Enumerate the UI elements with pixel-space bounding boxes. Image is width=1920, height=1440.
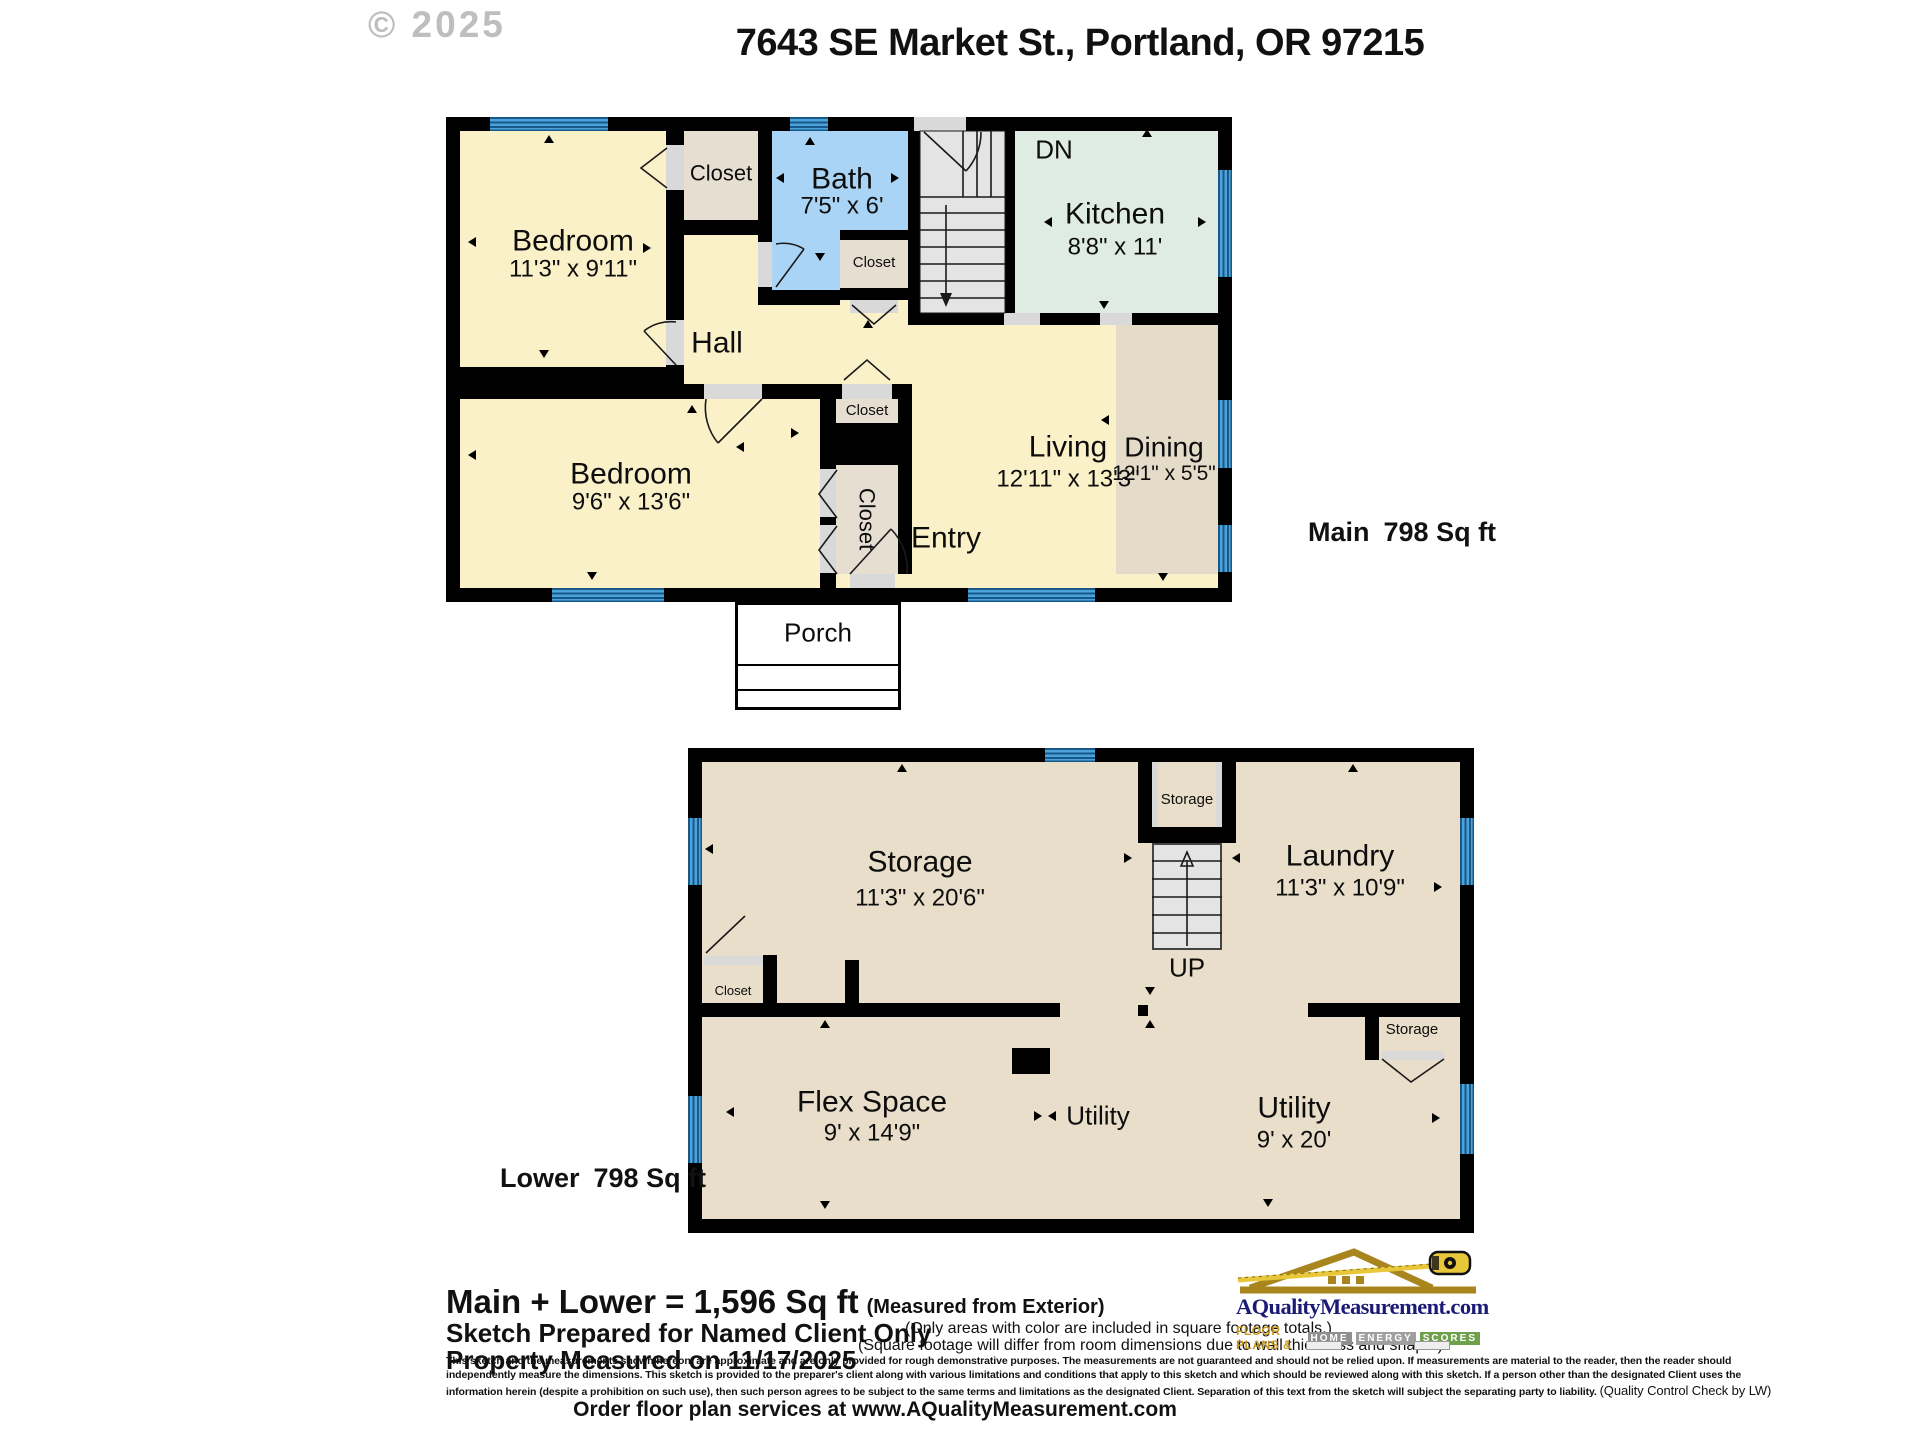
door-opening [666,320,684,365]
direction-arrow [544,135,554,143]
direction-arrow [1263,1199,1273,1207]
window [688,1096,702,1163]
direction-arrow [791,428,799,438]
direction-arrow [705,844,713,854]
label-living: Living [1029,431,1107,463]
direction-arrow [1232,853,1240,863]
label-storage-dims: 11'3" x 20'6" [855,885,985,910]
label-entry: Entry [911,522,981,554]
total-area-line: Main + Lower = 1,596 Sq ft(Measured from… [446,1283,1104,1321]
door-opening [1382,1051,1444,1060]
wall [460,367,666,385]
direction-arrow [643,243,651,253]
window [1045,748,1095,762]
window [790,117,828,131]
label-closet: Closet [715,984,752,998]
direction-arrow [1044,217,1052,227]
main-area-label: Main798 Sq ft [1308,517,1496,548]
wall [845,960,859,1003]
copyright-watermark: © 2025 [368,4,506,46]
label-closet: Closet [846,403,889,419]
logo-mini-tag [1414,1341,1450,1350]
wall [1005,131,1015,313]
wall [688,1219,1474,1233]
direction-arrow [1348,764,1358,772]
direction-arrow [776,173,784,183]
label-porch: Porch [784,619,852,646]
direction-arrow [1432,1113,1440,1123]
window [1460,818,1474,885]
door-opening [914,117,966,131]
label-dining: Dining [1124,432,1203,461]
badge-energy: ENERGY [1356,1332,1416,1345]
lower-area-floor: Lower [500,1163,580,1193]
logo-mini-tag [1306,1341,1342,1350]
door-opening [704,956,763,965]
window [968,588,1095,602]
property-address-title: 7643 SE Market St., Portland, OR 97215 [600,22,1560,65]
direction-arrow [687,405,697,413]
wall [772,290,840,305]
door-opening [850,574,895,588]
label-kitchen-dims: 8'8" x 11' [1068,234,1163,259]
label-dining-dims: 12'1" x 5'5" [1112,463,1216,485]
label-utility-dims: 9' x 20' [1257,1127,1332,1152]
lower-area-sqft: 798 Sq ft [594,1163,707,1193]
label-storage-small: Storage [1386,1022,1439,1038]
direction-arrow [1434,882,1442,892]
porch: Porch [735,602,901,710]
direction-arrow [815,253,825,261]
wall [460,384,836,399]
direction-arrow [820,1020,830,1028]
direction-arrow [1145,1020,1155,1028]
window [490,117,608,131]
label-bedroom-2: Bedroom [570,458,692,490]
door-opening [1100,313,1132,325]
post [1138,1005,1148,1016]
disclaimer-line-3: information herein (despite a prohibitio… [446,1383,1521,1398]
door-opening [758,242,772,287]
porch-step [738,664,898,666]
label-kitchen: Kitchen [1065,198,1165,230]
direction-arrow [726,1107,734,1117]
label-bath: Bath [811,163,873,195]
room-bath-ext [772,230,840,290]
label-closet: Closet [855,488,878,550]
lower-floor-plan: Storage 11'3" x 20'6" Storage UP Laundry… [688,748,1474,1233]
direction-arrow [1142,129,1152,137]
wall [840,230,908,240]
stairs-main [920,131,1005,313]
order-services-line: Order floor plan services at www.AQualit… [460,1398,1290,1422]
direction-arrow [891,173,899,183]
direction-arrow [1034,1111,1042,1121]
label-utility-small: Utility [1066,1102,1130,1129]
logo-tagline: FLOOR PLANS & [1236,1324,1304,1352]
door-opening [850,300,898,313]
direction-arrow [1198,217,1206,227]
label-storage-nook: Storage [1161,792,1214,808]
door-opening [666,145,684,190]
label-closet: Closet [690,161,752,184]
total-area-note: (Measured from Exterior) [867,1296,1105,1318]
wall [1308,1003,1460,1017]
main-area-sqft: 798 Sq ft [1384,517,1497,547]
direction-arrow [539,350,549,358]
label-flex-space: Flex Space [797,1086,947,1118]
label-stairs-up: UP [1169,954,1205,981]
porch-step [738,689,898,691]
chimney [1012,1048,1050,1074]
label-utility: Utility [1257,1092,1330,1124]
direction-arrow [1124,853,1132,863]
wall [898,384,912,574]
logo-site-name: AQualityMeasurement.com [1236,1294,1480,1320]
wall [908,131,920,313]
window [1218,400,1232,468]
direction-arrow [1048,1111,1056,1121]
direction-arrow [468,237,476,247]
stairs-lower [1152,843,1222,950]
disclaimer-line-2: independently measure the dimensions. Th… [446,1369,1521,1381]
label-laundry: Laundry [1286,840,1394,872]
floor-plan-sheet: © 2025 7643 SE Market St., Portland, OR … [0,0,1920,1440]
window [1218,525,1232,572]
lower-area-label: Lower798 Sq ft [500,1163,706,1194]
disclaimer-line-3-text: information herein (despite a prohibitio… [446,1386,1600,1398]
quality-control-note: (Quality Control Check by LW) [1600,1383,1772,1398]
label-flex-space-dims: 9' x 14'9" [824,1120,920,1145]
door-opening [1216,762,1222,827]
direction-arrow [805,137,815,145]
wall [763,955,777,1003]
direction-arrow [897,764,907,772]
direction-arrow [468,450,476,460]
label-closet: Closet [853,255,896,271]
label-bedroom-1: Bedroom [512,225,634,257]
wall [702,1003,1060,1017]
wall [820,423,898,465]
main-area-floor: Main [1308,517,1370,547]
window [1218,170,1232,277]
label-storage: Storage [867,846,972,878]
wall [446,117,460,602]
door-opening [1004,313,1040,325]
label-laundry-dims: 11'3" x 10'9" [1275,875,1405,900]
label-hall: Hall [691,327,743,359]
window [688,818,702,885]
door-opening [704,384,762,399]
door-opening [842,384,892,399]
total-area-text: Main + Lower = 1,596 Sq ft [446,1283,859,1320]
roof-tape-measure-icon [1236,1246,1480,1296]
window [552,588,664,602]
label-bedroom-1-dims: 11'3" x 9'11" [509,256,637,281]
door-opening [820,469,836,517]
label-bath-dims: 7'5" x 6' [800,193,883,218]
label-stairs-down: DN [1035,136,1073,163]
direction-arrow [587,572,597,580]
direction-arrow [1158,573,1168,581]
direction-arrow [820,1201,830,1209]
door-opening [1152,762,1158,827]
wall [908,313,1218,325]
lower-interior [702,762,1460,1219]
main-floor-plan: Bedroom 11'3" x 9'11" Closet Bath 7'5" x… [446,117,1232,602]
wall [840,288,908,300]
direction-arrow [736,442,744,452]
door-opening [820,525,836,573]
direction-arrow [863,320,873,328]
wall [1365,1014,1379,1060]
window [1460,1084,1474,1154]
direction-arrow [1099,301,1109,309]
disclaimer-line-1: This sketch and the measurements shown h… [446,1355,1521,1367]
label-bedroom-2-dims: 9'6" x 13'6" [572,489,690,514]
direction-arrow [1145,987,1155,995]
direction-arrow [1101,415,1109,425]
wall [1138,827,1236,843]
